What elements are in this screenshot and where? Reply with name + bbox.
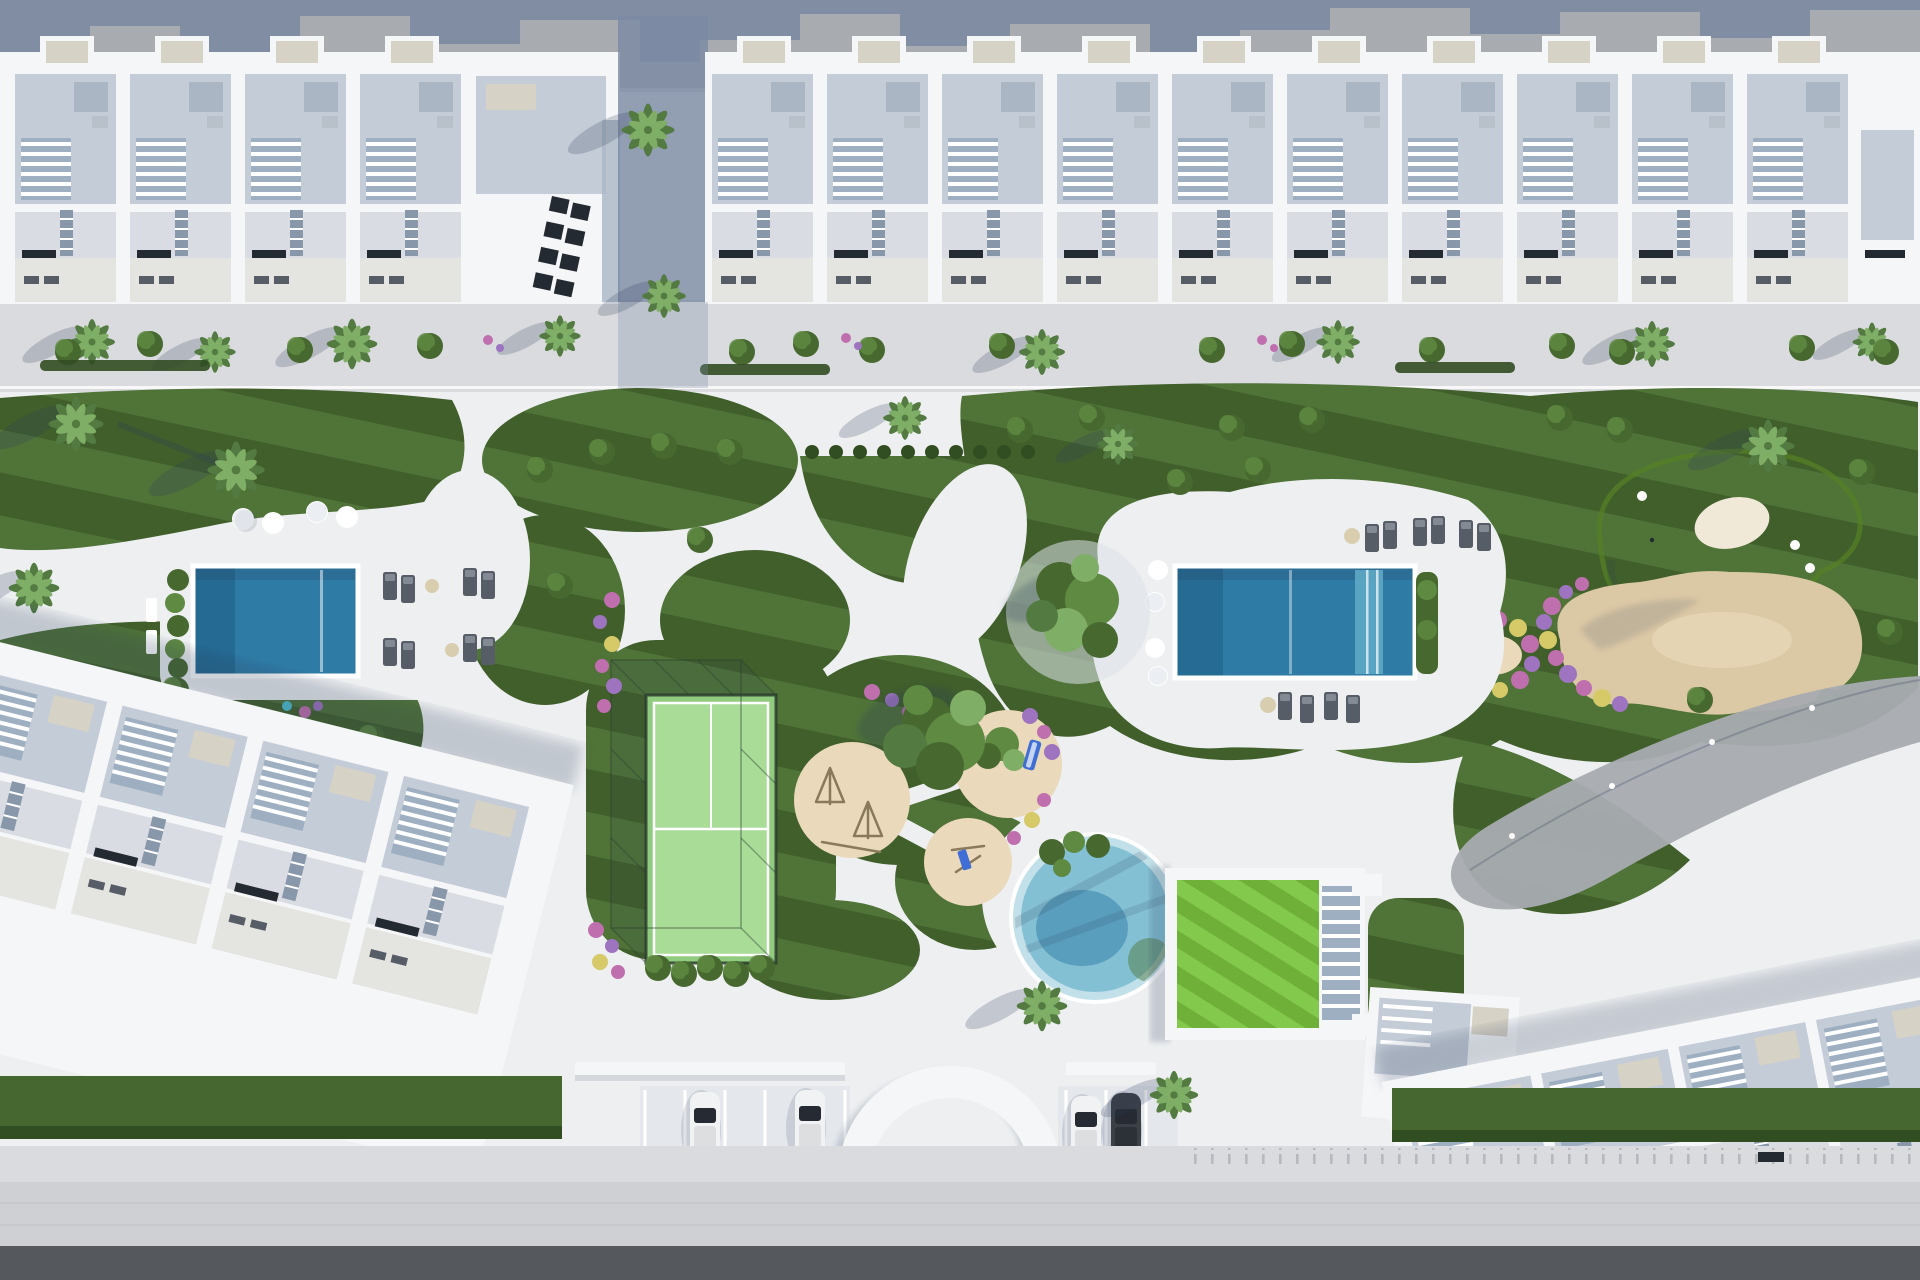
sun-lounger: [481, 637, 495, 665]
townhouse-unit: [1625, 36, 1740, 302]
golf-hole: [1790, 540, 1800, 550]
render-stage: [0, 0, 1920, 1280]
townhouse-unit: [1740, 36, 1855, 302]
sun-lounger: [401, 641, 415, 669]
sun-lounger: [1365, 524, 1379, 552]
townhouse-unit: [705, 36, 820, 302]
parasol: [1260, 697, 1276, 713]
townhouse-unit: [123, 36, 238, 302]
pool-steps: [1355, 570, 1383, 674]
townhouse-unit: [8, 36, 123, 302]
townhouse-unit: [820, 36, 935, 302]
service-lane: [0, 1182, 1920, 1246]
sun-lounger: [1413, 518, 1427, 546]
site-plan-render: [0, 0, 1920, 1280]
end-building-east: [1855, 52, 1920, 302]
tactile-paving: [1180, 1148, 1920, 1164]
sun-lounger: [383, 638, 397, 666]
sun-lounger: [1324, 692, 1338, 720]
asphalt-road: [0, 1246, 1920, 1280]
sun-lounger: [481, 571, 495, 599]
street-furniture: [1758, 1152, 1784, 1162]
townhouse-unit: [1395, 36, 1510, 302]
townhouse-unit: [1050, 36, 1165, 302]
sun-lounger: [1278, 692, 1292, 720]
side-table: [445, 643, 459, 657]
sun-lounger: [463, 568, 477, 596]
townhouse-unit: [1165, 36, 1280, 302]
clubhouse-green-roof: [1177, 880, 1319, 1028]
sun-lounger: [1300, 695, 1314, 723]
townhouse-unit: [1280, 36, 1395, 302]
sun-lounger: [1477, 523, 1491, 551]
sun-lounger: [383, 572, 397, 600]
street-hedge-east: [1392, 1130, 1920, 1142]
boundary-wall: [1066, 1062, 1156, 1075]
townhouse-unit: [1510, 36, 1625, 302]
golf-hole: [1637, 491, 1647, 501]
street-hedge-west: [0, 1126, 562, 1139]
townhouse-unit: [353, 36, 468, 302]
sun-lounger: [401, 575, 415, 603]
side-table: [425, 579, 439, 593]
clubhouse: [1150, 866, 1382, 1042]
sun-lounger: [1383, 521, 1397, 549]
townhouse-unit: [238, 36, 353, 302]
pool-pad: [146, 598, 157, 622]
sun-lounger: [1346, 695, 1360, 723]
townhouse-unit: [935, 36, 1050, 302]
golf-hole: [1805, 563, 1815, 573]
boundary-wall: [575, 1062, 845, 1075]
parasol: [1344, 528, 1360, 544]
sun-lounger: [1431, 516, 1445, 544]
gap-shadow: [618, 16, 708, 302]
end-building-solar: [468, 52, 620, 302]
sun-lounger: [463, 634, 477, 662]
sun-lounger: [1459, 520, 1473, 548]
